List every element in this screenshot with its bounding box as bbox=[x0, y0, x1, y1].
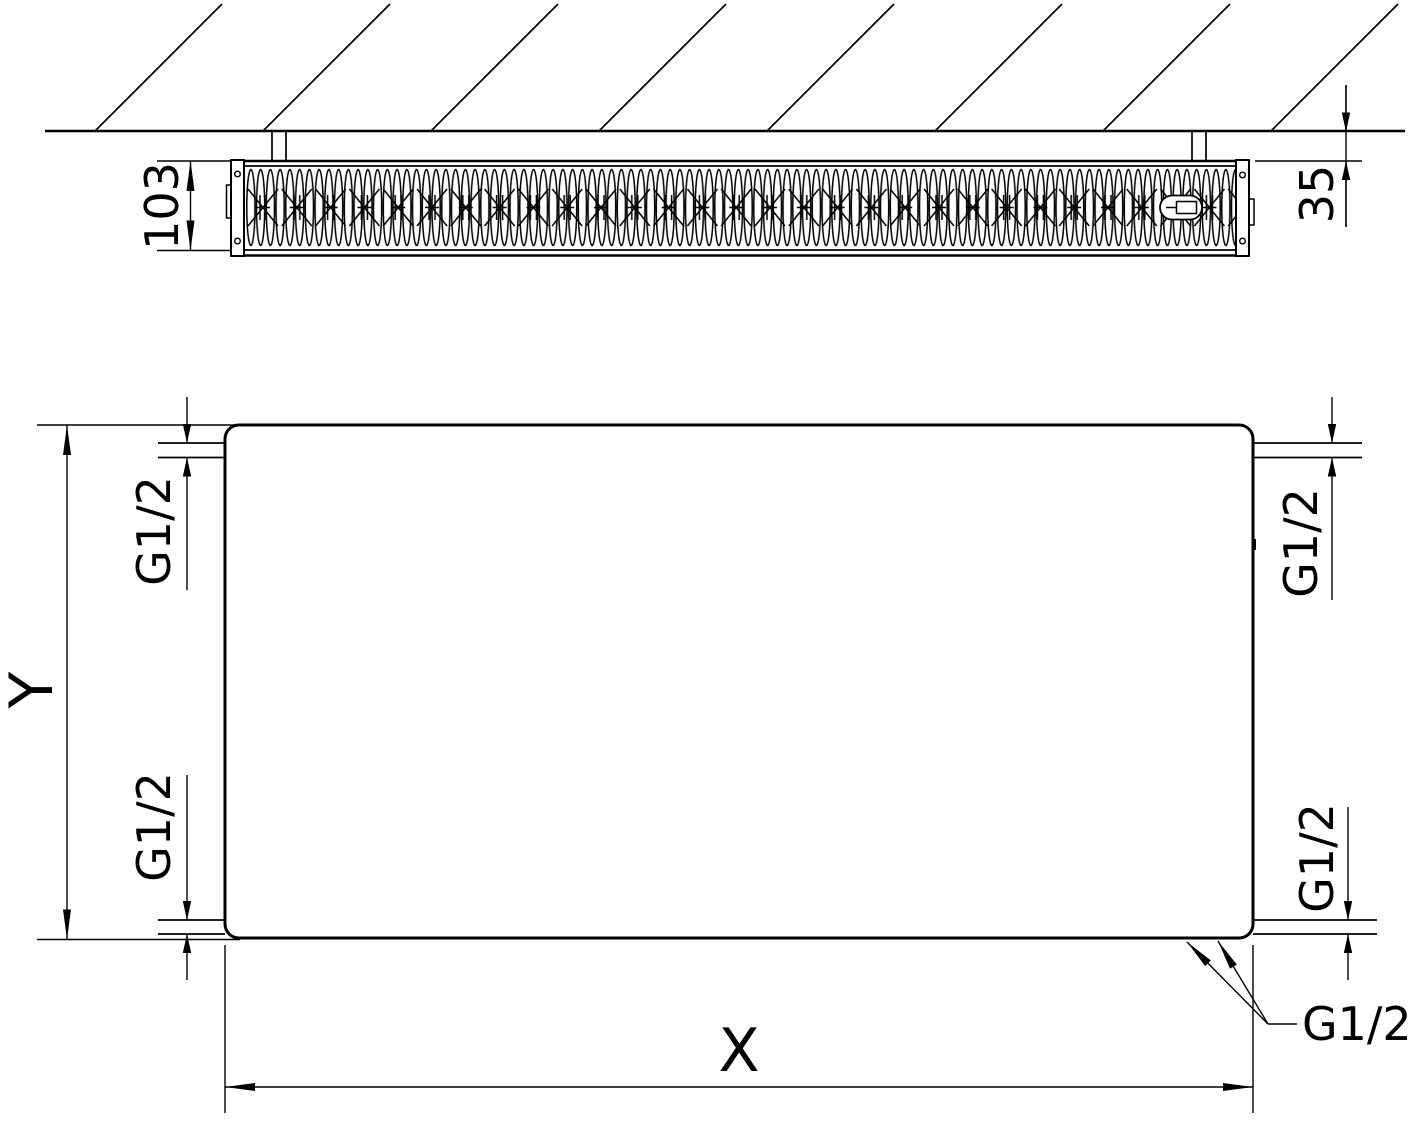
technical-drawing-page: 103 35 Y X G1/2 G1/2 bbox=[0, 0, 1427, 1125]
thread-label-top-left: G1/2 bbox=[127, 476, 181, 586]
edge-weld-mark bbox=[1252, 539, 1256, 550]
radiator-cross-section bbox=[227, 160, 1255, 256]
thread-label-bottom-left: G1/2 bbox=[127, 772, 181, 882]
thread-label-top-right: G1/2 bbox=[1274, 488, 1328, 598]
depth-dimension-label: 103 bbox=[135, 162, 189, 250]
wall-distance-label: 35 bbox=[1290, 165, 1344, 224]
height-dimension-label: Y bbox=[0, 671, 67, 709]
valve-insert bbox=[1160, 196, 1202, 220]
thread-label-bottom-right: G1/2 bbox=[1290, 803, 1344, 913]
thread-label-callout: G1/2 bbox=[1302, 997, 1412, 1051]
convector-fins-crossings bbox=[246, 168, 1236, 247]
radiator-dimension-drawing: 103 35 Y X G1/2 G1/2 bbox=[0, 0, 1427, 1125]
width-dimension-label: X bbox=[718, 1016, 759, 1086]
